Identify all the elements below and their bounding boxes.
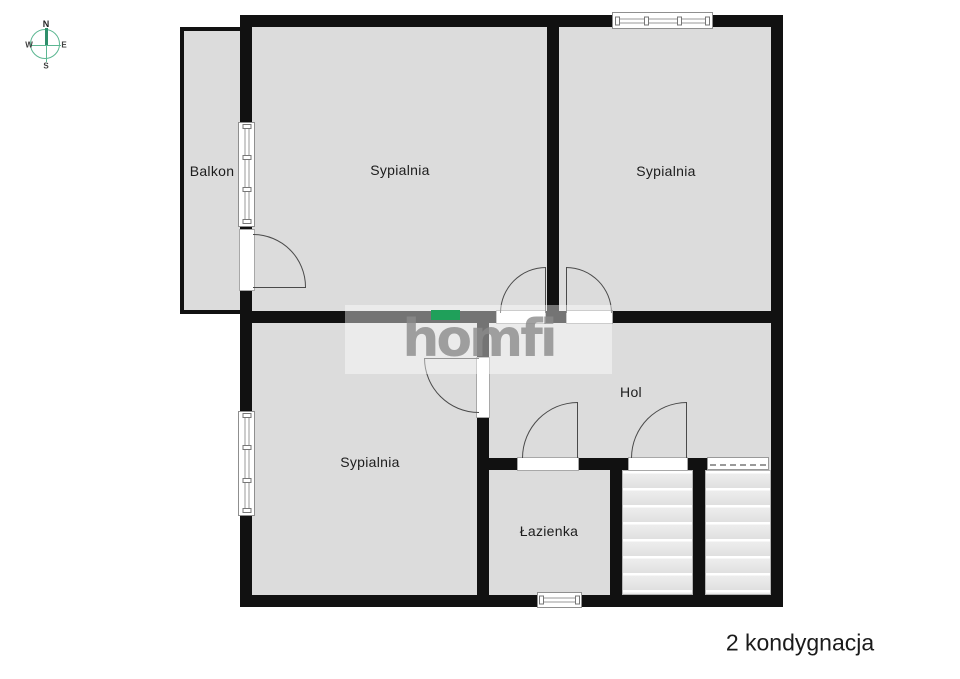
room-label-hol: Hol — [620, 384, 642, 400]
wall-bathroom-right — [610, 458, 622, 607]
homfi-logo-text: homfi — [345, 303, 612, 375]
room-label-sypialnia-top-right: Sypialnia — [636, 163, 696, 179]
homfi-logo-accent — [431, 310, 460, 320]
stairs-opening — [707, 457, 769, 470]
window-glazing — [244, 414, 249, 513]
staircase-left — [622, 470, 693, 595]
window-mullion — [242, 187, 251, 192]
compass-needle-north-icon — [45, 28, 48, 45]
window-mullion — [644, 16, 649, 25]
window-mullion — [677, 16, 682, 25]
compass-needle-south-icon — [46, 46, 48, 62]
compass-label-n: N — [43, 19, 50, 29]
room-label-sypialnia-bottom: Sypialnia — [340, 454, 400, 470]
window-bedroom3-left — [238, 411, 255, 516]
compass-label-w: W — [25, 41, 33, 50]
door-bathroom — [517, 457, 579, 471]
door-stairs — [628, 457, 688, 471]
window-glazing — [615, 18, 710, 23]
window-mullion — [242, 219, 251, 224]
window-mullion — [242, 445, 251, 450]
window-bedroom2-top — [612, 12, 713, 29]
window-mullion — [242, 413, 251, 418]
compass-rose: N S E W — [22, 14, 70, 74]
door-leaf-stairs — [686, 402, 687, 458]
window-mullion — [615, 16, 620, 25]
window-mullion — [242, 508, 251, 513]
floor-plan: Balkon Sypialnia Sypialnia Sypialnia Hol… — [0, 0, 960, 679]
room-label-balkon: Balkon — [190, 163, 235, 179]
window-balcony — [238, 122, 255, 227]
wall-stairs-divider — [693, 458, 705, 607]
window-mullion — [242, 478, 251, 483]
door-leaf-balcony — [253, 287, 306, 288]
window-bathroom — [537, 592, 582, 608]
window-glazing — [540, 598, 579, 603]
wall-balcony-bottom — [180, 310, 240, 314]
compass-east-west-line-icon — [30, 45, 61, 47]
compass-label-s: S — [43, 62, 48, 71]
stairs-opening-line — [710, 464, 766, 466]
compass-label-e: E — [61, 41, 66, 50]
window-glazing — [244, 125, 249, 224]
window-mullion — [242, 124, 251, 129]
window-mullion — [575, 596, 580, 605]
window-mullion — [705, 16, 710, 25]
room-label-lazienka: Łazienka — [520, 523, 578, 539]
wall-balcony-left — [180, 27, 184, 314]
wall-balcony-top — [180, 27, 240, 31]
room-label-sypialnia-top-left: Sypialnia — [370, 162, 430, 178]
wall-bedroom-divider — [547, 15, 559, 323]
door-leaf-bathroom — [577, 402, 578, 458]
window-mullion — [242, 155, 251, 160]
floor-caption: 2 kondygnacja — [726, 630, 874, 657]
staircase-right — [705, 470, 771, 595]
window-mullion — [539, 596, 544, 605]
